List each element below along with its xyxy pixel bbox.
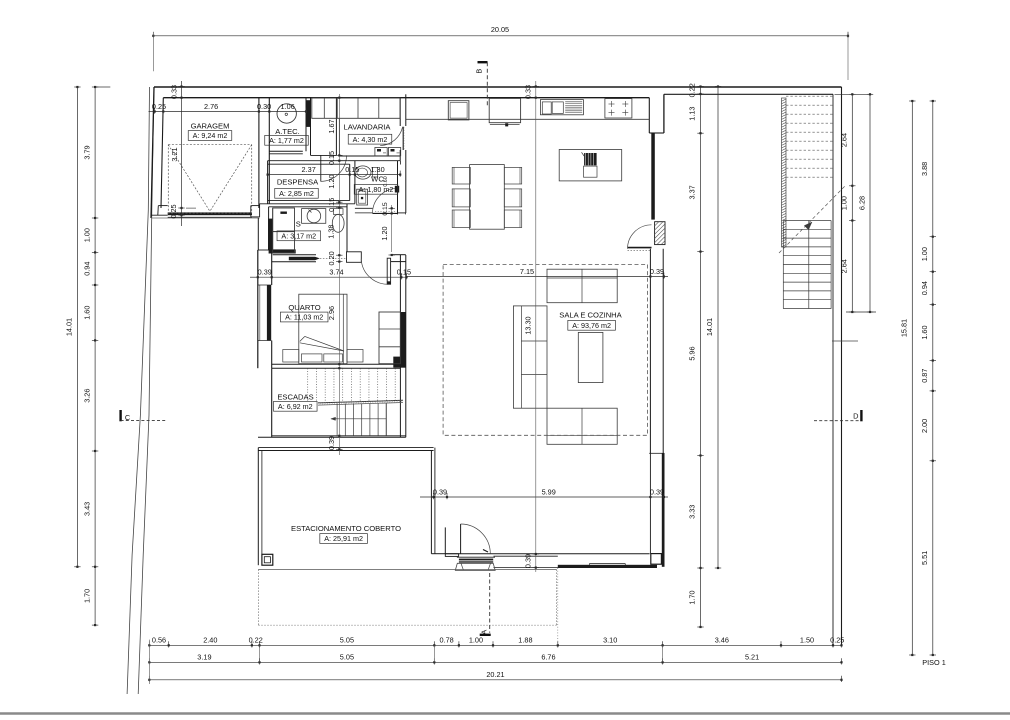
svg-text:1.13: 1.13 [688,106,697,120]
svg-text:0.25: 0.25 [830,635,844,644]
svg-text:0.33: 0.33 [524,85,533,99]
svg-text:LAVANDARIA: LAVANDARIA [344,123,392,132]
svg-text:1.38: 1.38 [327,224,336,238]
svg-text:0.94: 0.94 [83,262,92,276]
svg-text:A: 3,17 m2: A: 3,17 m2 [281,231,316,240]
svg-text:2.40: 2.40 [203,635,217,644]
svg-text:0.39: 0.39 [650,267,664,276]
svg-text:3.26: 3.26 [83,389,92,403]
svg-text:2.96: 2.96 [327,306,336,320]
svg-text:A: 11,03 m2: A: 11,03 m2 [285,313,323,322]
svg-text:QUARTO: QUARTO [288,303,320,312]
svg-text:6.28: 6.28 [858,196,867,210]
svg-text:13.30: 13.30 [524,316,533,334]
svg-text:0.15: 0.15 [327,198,336,212]
svg-text:0.39: 0.39 [433,487,447,496]
svg-text:1.00: 1.00 [920,247,929,261]
svg-text:A: 2,85 m2: A: 2,85 m2 [279,189,314,198]
svg-text:0.39: 0.39 [258,268,272,277]
svg-text:0.30: 0.30 [257,102,271,111]
svg-text:2.64: 2.64 [840,133,849,147]
svg-text:A: 9,24 m2: A: 9,24 m2 [193,131,228,140]
svg-text:1.70: 1.70 [83,589,92,603]
svg-text:14.01: 14.01 [65,318,74,336]
svg-text:5.05: 5.05 [340,635,354,644]
svg-text:3.43: 3.43 [83,502,92,516]
svg-text:15.81: 15.81 [900,319,909,337]
svg-text:3.10: 3.10 [603,635,617,644]
svg-text:1.70: 1.70 [688,590,697,604]
svg-text:0.22: 0.22 [249,635,263,644]
svg-text:2.00: 2.00 [920,419,929,433]
svg-text:0.78: 0.78 [439,635,453,644]
svg-text:A: 6,92 m2: A: 6,92 m2 [278,402,313,411]
svg-text:1.06: 1.06 [281,102,295,111]
svg-text:GARAGEM: GARAGEM [191,121,230,130]
svg-text:1.67: 1.67 [327,119,336,133]
svg-text:3.19: 3.19 [197,653,211,662]
svg-text:0.94: 0.94 [920,281,929,295]
svg-text:0.15: 0.15 [397,268,411,277]
svg-text:1.30: 1.30 [370,165,384,174]
svg-text:A: 4,30 m2: A: 4,30 m2 [353,135,388,144]
svg-text:1.88: 1.88 [518,635,532,644]
svg-text:A: A [479,630,488,635]
svg-text:A.TEC.: A.TEC. [275,127,299,136]
svg-text:3.33: 3.33 [688,505,697,519]
svg-text:A: 93,76 m2: A: 93,76 m2 [572,321,611,330]
svg-text:5.21: 5.21 [745,653,759,662]
svg-text:0.25: 0.25 [152,102,166,111]
svg-text:3.79: 3.79 [83,145,92,159]
svg-text:ESTACIONAMENTO COBERTO: ESTACIONAMENTO COBERTO [291,524,401,533]
svg-text:1.00: 1.00 [469,635,483,644]
svg-text:DESPENSA: DESPENSA [277,177,319,186]
svg-text:6.76: 6.76 [541,653,555,662]
svg-text:ESCADAS: ESCADAS [277,392,313,401]
svg-text:3.88: 3.88 [920,162,929,176]
svg-text:1.20: 1.20 [327,174,336,188]
svg-text:0.39: 0.39 [524,554,533,568]
svg-text:0.15: 0.15 [345,165,359,174]
svg-text:0.33: 0.33 [170,85,179,99]
svg-text:0.20: 0.20 [327,251,336,265]
svg-text:7.15: 7.15 [520,267,534,276]
svg-text:1.60: 1.60 [83,306,92,320]
svg-text:B: B [475,69,484,74]
svg-text:1.60: 1.60 [920,325,929,339]
svg-text:20.21: 20.21 [486,670,504,679]
svg-text:0.39: 0.39 [650,487,664,496]
svg-text:0.56: 0.56 [152,635,166,644]
svg-text:5.96: 5.96 [688,346,697,360]
svg-text:2.64: 2.64 [840,259,849,273]
svg-text:0.15: 0.15 [382,202,389,215]
svg-text:D: D [853,412,858,421]
svg-text:1.20: 1.20 [380,226,389,240]
svg-text:3.74: 3.74 [329,268,343,277]
svg-text:PISO 1: PISO 1 [922,658,946,667]
svg-text:1.00: 1.00 [840,196,849,210]
svg-text:0.22: 0.22 [688,83,697,97]
svg-text:5.05: 5.05 [340,653,354,662]
svg-text:0.15: 0.15 [327,151,336,165]
svg-text:1.00: 1.00 [83,228,92,242]
svg-text:2.37: 2.37 [302,165,316,174]
svg-text:3.21: 3.21 [170,147,179,161]
svg-text:0.39: 0.39 [327,436,336,450]
svg-text:3.37: 3.37 [688,185,697,199]
svg-text:0.25: 0.25 [169,204,178,218]
svg-text:0.87: 0.87 [920,369,929,383]
svg-text:14.01: 14.01 [705,318,714,336]
svg-text:A: 1,80 m2: A: 1,80 m2 [359,185,394,194]
svg-text:A: 25,91 m2: A: 25,91 m2 [324,534,363,543]
svg-text:1.50: 1.50 [800,635,814,644]
svg-text:S: S [296,219,301,228]
svg-text:20.05: 20.05 [491,25,509,34]
svg-text:5.51: 5.51 [920,551,929,565]
svg-text:5.99: 5.99 [542,487,556,496]
svg-text:SALA E COZINHA: SALA E COZINHA [559,310,622,319]
svg-text:2.76: 2.76 [204,102,218,111]
svg-text:A: 1,77 m2: A: 1,77 m2 [269,136,304,145]
svg-text:3.46: 3.46 [715,635,729,644]
